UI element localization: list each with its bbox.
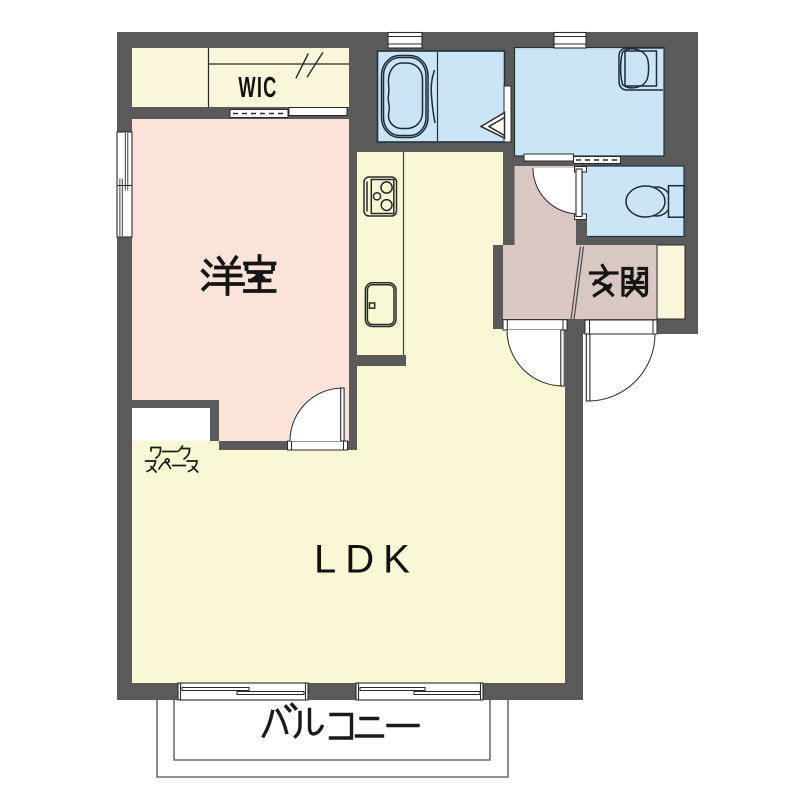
svg-text:LDK: LDK [314,538,419,582]
svg-text:WIC: WIC [238,72,277,104]
